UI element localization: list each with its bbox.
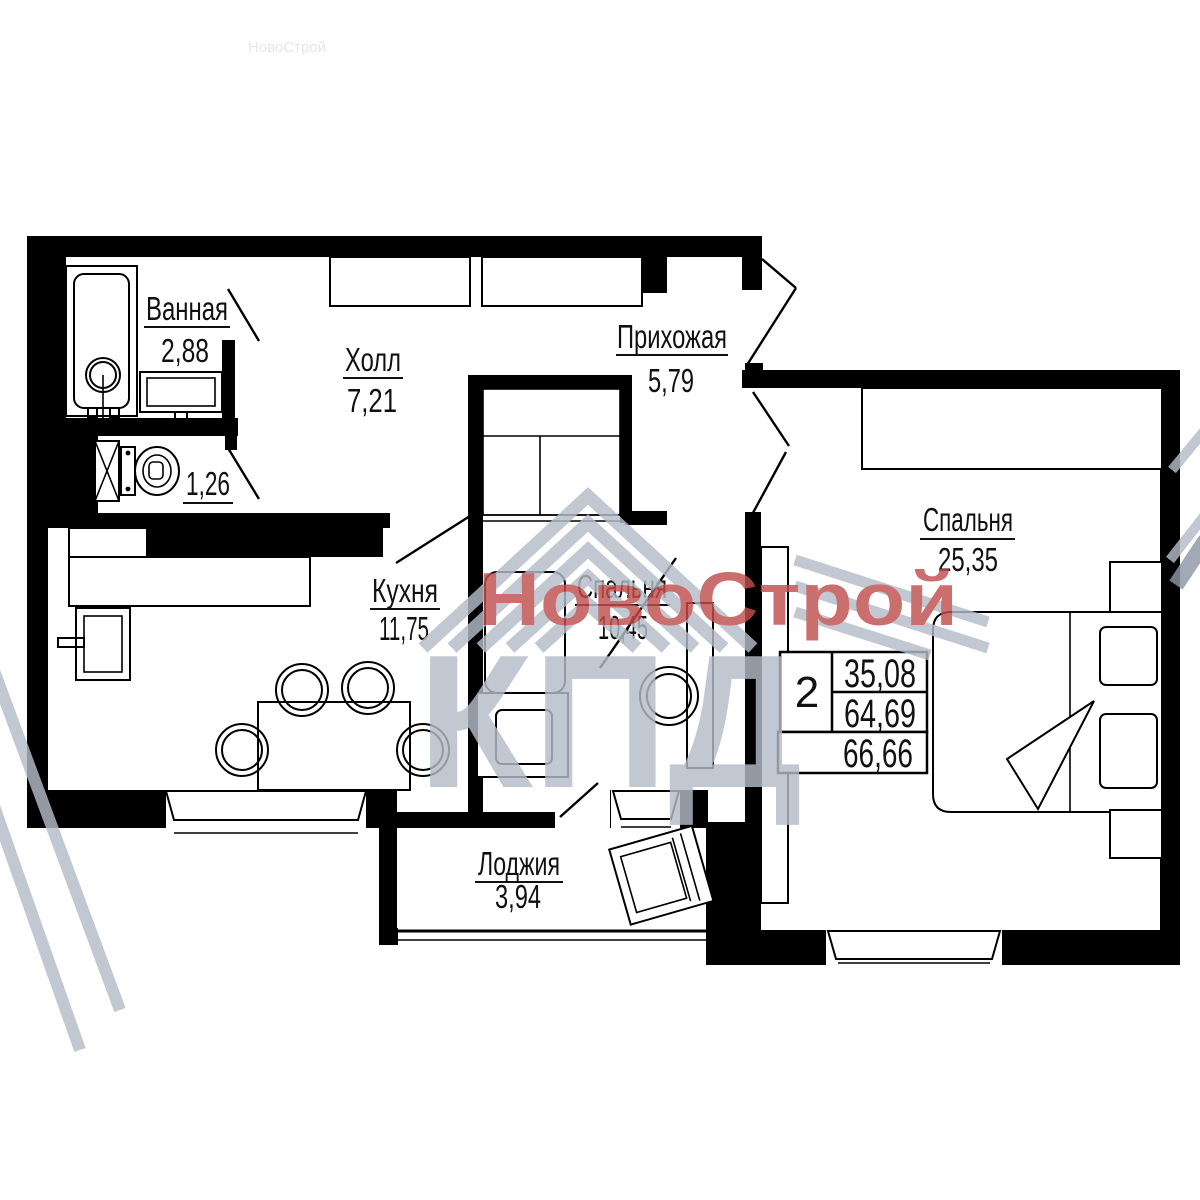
wall-bedroom-top xyxy=(742,370,1180,388)
wall-bath-right xyxy=(222,340,235,418)
washbasin xyxy=(140,372,222,426)
bathroom-name: Ванная xyxy=(146,290,228,327)
entry-name: Прихожая xyxy=(617,318,727,355)
bedroom-door-leaf-1 xyxy=(753,392,789,446)
washing-machine xyxy=(95,441,119,501)
nightstand-2 xyxy=(1110,810,1162,858)
dining-table xyxy=(258,702,410,790)
loggia-name: Лоджия xyxy=(478,845,560,882)
apartment-area: 64,69 xyxy=(844,692,916,736)
kitchen-window xyxy=(166,790,366,838)
wall-closet-tick xyxy=(625,511,667,525)
total-area: 66,66 xyxy=(843,732,913,776)
wall-closet-top xyxy=(468,375,632,389)
entrance-door-leaf-2 xyxy=(747,288,796,365)
wall-hall-pier xyxy=(642,257,667,293)
wall-top-corner xyxy=(742,257,762,290)
bedroom-window xyxy=(826,930,1002,965)
pillow-2 xyxy=(1100,714,1157,788)
room-label-entry: Прихожая 5,79 xyxy=(616,318,728,399)
bedroom-large-name: Спальня xyxy=(923,501,1013,538)
wall-loggia-corner xyxy=(379,928,398,945)
entrance-door-leaf-1 xyxy=(762,259,796,288)
watermark-logo-text: КПД xyxy=(418,616,803,828)
room-label-bathroom: Ванная 2,88 xyxy=(144,290,230,369)
bathtub xyxy=(66,266,137,420)
kitchen-sink xyxy=(58,608,130,680)
pillow-1 xyxy=(1100,627,1157,685)
wall-loggia-left xyxy=(379,828,397,933)
bathroom-area: 2,88 xyxy=(161,332,209,369)
wall-bath-left xyxy=(27,257,66,418)
watermark-tile-text: НовоСтрой xyxy=(248,39,326,56)
room-label-toilet: 1,26 xyxy=(183,465,233,503)
kitchen-name: Кухня xyxy=(372,572,438,609)
entry-area: 5,79 xyxy=(648,362,694,399)
toilet xyxy=(121,447,179,495)
loggia-chair xyxy=(609,826,713,925)
kitchen-vent-block xyxy=(147,528,383,557)
wall-bath-toilet xyxy=(27,418,238,436)
wall-closet-right xyxy=(620,389,632,523)
hall-wardrobe-1 xyxy=(330,257,470,306)
hall-area: 7,21 xyxy=(347,382,397,419)
living-area: 35,08 xyxy=(844,652,916,696)
loggia-area: 3,94 xyxy=(495,878,541,915)
room-label-hall: Холл 7,21 xyxy=(343,341,403,419)
hall-wardrobe-2 xyxy=(482,257,642,306)
room-label-loggia: Лоджия 3,94 xyxy=(475,845,563,915)
kitchen-door xyxy=(396,516,470,563)
toilet-area: 1,26 xyxy=(186,465,230,502)
floorplan-canvas: Ванная 2,88 1,26 Холл 7,21 Прихожая 5,79… xyxy=(0,0,1200,1200)
loggia-glazing xyxy=(397,931,706,940)
nightstand-1 xyxy=(1110,562,1162,612)
wall-top xyxy=(27,236,762,257)
bathroom-door xyxy=(228,289,259,341)
wall-toilet-right-stub xyxy=(225,436,237,450)
wall-loggia-right xyxy=(706,822,745,940)
bedroom-wardrobe xyxy=(862,388,1162,469)
floorplan-svg: Ванная 2,88 1,26 Холл 7,21 Прихожая 5,79… xyxy=(0,0,1200,1200)
hall-name: Холл xyxy=(345,341,401,378)
toilet-door xyxy=(228,448,259,499)
wall-toilet-left-block xyxy=(27,436,98,513)
bedroom-door-leaf-2 xyxy=(748,452,786,522)
wall-kitchen-top xyxy=(27,513,390,528)
